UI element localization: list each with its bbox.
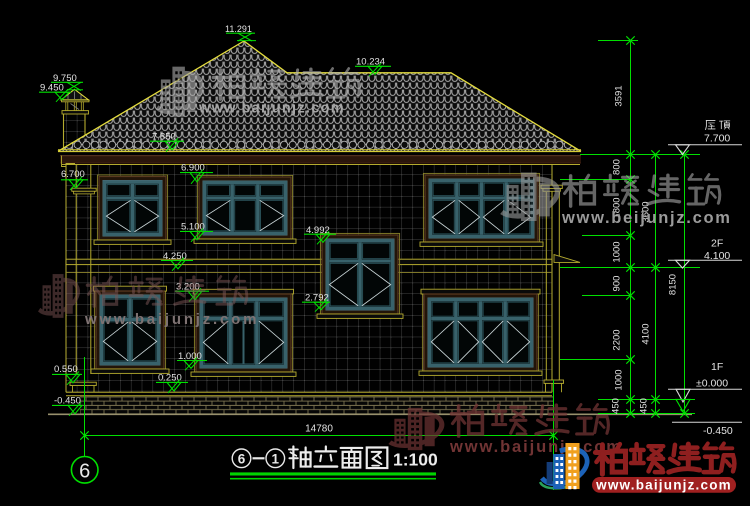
svg-text:6: 6 — [79, 460, 90, 482]
svg-text:1000: 1000 — [614, 369, 625, 390]
svg-text:6: 6 — [238, 451, 246, 466]
svg-text:1:100: 1:100 — [393, 450, 438, 470]
svg-text:www.beijunjz.com: www.beijunjz.com — [561, 209, 732, 227]
svg-text:www.baijunjz.com: www.baijunjz.com — [595, 478, 732, 493]
svg-text:±0.000: ±0.000 — [696, 378, 728, 390]
svg-text:900: 900 — [612, 276, 623, 292]
svg-text:11.291: 11.291 — [225, 24, 252, 34]
svg-text:450: 450 — [611, 398, 622, 414]
svg-text:0.550: 0.550 — [54, 364, 78, 375]
svg-text:1000: 1000 — [612, 241, 623, 262]
svg-text:1: 1 — [272, 451, 280, 466]
svg-text:1F: 1F — [711, 361, 723, 373]
svg-text:450: 450 — [639, 398, 650, 414]
svg-text:www.baijunjz.com: www.baijunjz.com — [84, 311, 259, 328]
svg-text:www.baijunjz.com: www.baijunjz.com — [198, 101, 345, 117]
svg-text:8150: 8150 — [668, 274, 679, 295]
svg-text:7.700: 7.700 — [704, 133, 730, 145]
svg-text:3591: 3591 — [614, 85, 625, 106]
svg-text:4100: 4100 — [641, 323, 652, 344]
svg-text:800: 800 — [612, 159, 623, 175]
svg-text:2F: 2F — [711, 238, 723, 250]
svg-text:-0.450: -0.450 — [54, 395, 81, 406]
svg-text:2200: 2200 — [612, 329, 623, 350]
svg-text:-0.450: -0.450 — [703, 425, 733, 437]
svg-text:14780: 14780 — [305, 423, 333, 434]
